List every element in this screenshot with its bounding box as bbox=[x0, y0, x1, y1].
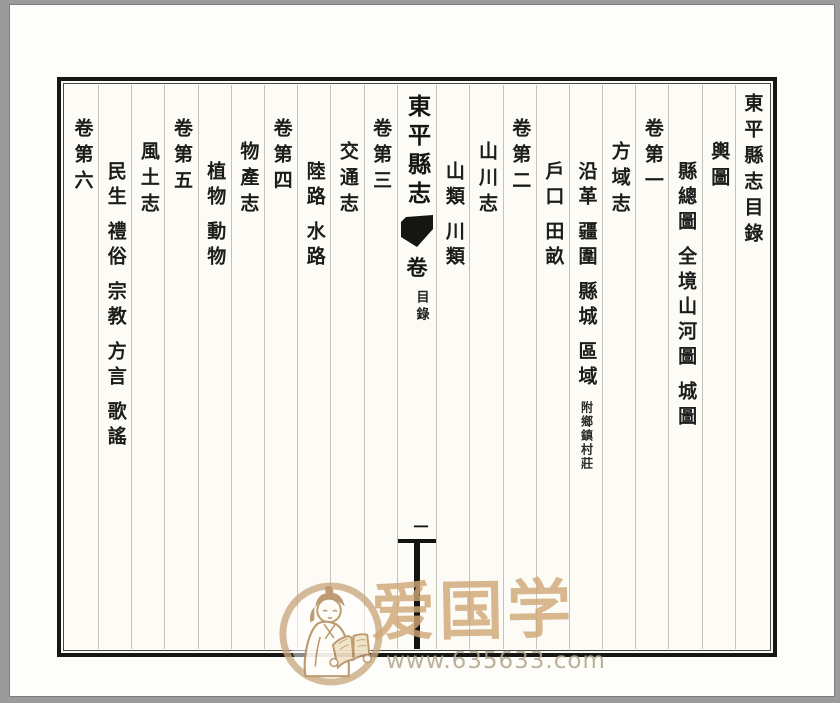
toc-entry: 田畝 bbox=[542, 221, 564, 271]
spine-section-label: 目錄 bbox=[414, 290, 427, 324]
toc-column-volume-5: 卷第五 bbox=[164, 85, 197, 649]
toc-entry-annotation: 附鄉鎮村莊 bbox=[580, 401, 594, 471]
toc-column-fengtu-items: 民生禮俗宗教方言歌謠 bbox=[98, 85, 131, 649]
toc-column-yutu: 輿圖 bbox=[702, 85, 735, 649]
toc-entry: 交通志 bbox=[337, 141, 359, 219]
toc-entry: 疆圍 bbox=[576, 221, 598, 271]
toc-entry: 縣城 bbox=[576, 281, 598, 331]
toc-column-jiaotong: 交通志 bbox=[330, 85, 363, 649]
toc-column-title: 東平縣志目錄 bbox=[735, 85, 768, 649]
toc-entry: 卷第五 bbox=[171, 118, 193, 196]
toc-entry: 卷第四 bbox=[271, 118, 293, 196]
toc-column-fangyu: 方域志 bbox=[602, 85, 635, 649]
toc-column-volume-1: 卷第一 bbox=[635, 85, 668, 649]
toc-column-jiaotong-items: 陸路水路 bbox=[297, 85, 330, 649]
toc-column-fangyu-items-1: 沿革疆圍縣城區域附鄉鎮村莊 bbox=[569, 85, 602, 649]
fishtail-ornament-icon bbox=[401, 215, 433, 248]
toc-title: 東平縣志目錄 bbox=[742, 85, 761, 649]
scanned-book-page: 東平縣志目錄 輿圖 縣總圖全境山河圖城圖 卷第一 方域志 沿革疆圍縣城區域附鄉鎮… bbox=[10, 5, 834, 696]
spine-column: 東平縣志 卷 目錄 一 bbox=[397, 85, 437, 649]
toc-entry: 方言 bbox=[105, 341, 127, 391]
toc-column-volume-3: 卷第三 bbox=[364, 85, 397, 649]
toc-entry: 卷第三 bbox=[370, 118, 392, 196]
spine-line bbox=[414, 543, 420, 649]
toc-column-volume-2: 卷第二 bbox=[503, 85, 536, 649]
toc-entry: 戶口 bbox=[542, 161, 564, 211]
toc-entry: 方域志 bbox=[609, 141, 631, 219]
toc-entry: 陸路 bbox=[304, 161, 326, 211]
toc-entry: 全境山河圖 bbox=[675, 246, 697, 371]
toc-entry: 植物 bbox=[204, 161, 226, 211]
toc-column-volume-6: 卷第六 bbox=[66, 85, 98, 649]
toc-entry: 宗教 bbox=[105, 281, 127, 331]
toc-column-shanchuan-items: 山類川類 bbox=[436, 85, 469, 649]
toc-entry: 卷第一 bbox=[642, 118, 664, 196]
toc-entry: 區域 bbox=[576, 341, 598, 391]
spine-book-title: 東平縣志 bbox=[405, 85, 428, 210]
toc-column-yutu-items: 縣總圖全境山河圖城圖 bbox=[668, 85, 701, 649]
toc-entry: 禮俗 bbox=[105, 221, 127, 271]
toc-column-volume-4: 卷第四 bbox=[264, 85, 297, 649]
toc-entry: 輿圖 bbox=[708, 141, 730, 193]
toc-column-wuchan: 物產志 bbox=[231, 85, 264, 649]
toc-entry: 山類 bbox=[443, 161, 465, 211]
toc-entry: 卷第六 bbox=[72, 118, 94, 196]
toc-entry: 民生 bbox=[105, 161, 127, 211]
toc-column-wuchan-items: 植物動物 bbox=[198, 85, 231, 649]
toc-entry: 卷第二 bbox=[509, 118, 531, 196]
toc-entry: 歌謠 bbox=[105, 401, 127, 451]
toc-entry: 沿革 bbox=[576, 161, 598, 211]
toc-entry: 水路 bbox=[304, 221, 326, 271]
toc-entry: 山川志 bbox=[476, 141, 498, 219]
page-number: 一 bbox=[413, 518, 428, 536]
printing-frame: 東平縣志目錄 輿圖 縣總圖全境山河圖城圖 卷第一 方域志 沿革疆圍縣城區域附鄉鎮… bbox=[57, 77, 777, 657]
toc-entry: 城圖 bbox=[675, 381, 697, 431]
toc-entry: 物產志 bbox=[237, 141, 259, 219]
toc-entry: 川類 bbox=[443, 221, 465, 271]
toc-column-fangyu-items-2: 戶口田畝 bbox=[536, 85, 569, 649]
spine-volume-label: 卷 bbox=[406, 257, 427, 278]
toc-column-shanchuan: 山川志 bbox=[469, 85, 502, 649]
toc-columns: 東平縣志目錄 輿圖 縣總圖全境山河圖城圖 卷第一 方域志 沿革疆圍縣城區域附鄉鎮… bbox=[61, 81, 773, 653]
toc-entry: 縣總圖 bbox=[675, 161, 697, 236]
toc-entry: 動物 bbox=[204, 221, 226, 271]
toc-column-fengtu: 風土志 bbox=[131, 85, 164, 649]
toc-entry: 風土志 bbox=[138, 141, 160, 219]
